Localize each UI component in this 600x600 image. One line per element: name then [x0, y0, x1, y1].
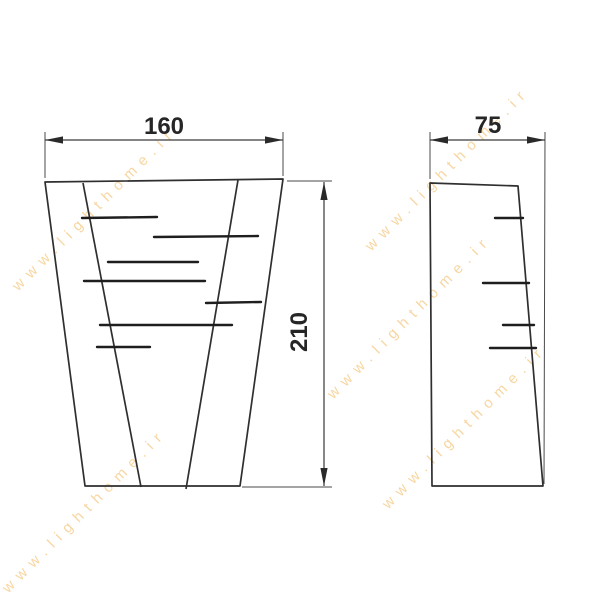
arrowhead-right — [527, 136, 545, 143]
arrowhead-bottom — [320, 468, 327, 486]
louver-line — [206, 302, 261, 303]
side-view-outline — [430, 183, 543, 486]
louver-line — [154, 236, 258, 237]
dimension-drawing-svg: 160 210 75 — [0, 0, 600, 600]
arrowhead-right — [265, 136, 283, 143]
dimension-front-width: 160 — [45, 113, 283, 178]
front-v-left-edge — [83, 183, 141, 487]
extension-line — [544, 132, 545, 484]
arrowhead-left — [45, 136, 63, 143]
front-view — [45, 179, 283, 489]
front-view-outline — [45, 179, 283, 486]
dimension-label-depth: 75 — [475, 112, 502, 139]
dimension-front-height: 210 — [242, 181, 332, 487]
dimension-label-width: 160 — [144, 113, 184, 140]
arrowhead-left — [430, 136, 448, 143]
louver-line — [82, 217, 157, 218]
arrowhead-top — [320, 182, 327, 200]
front-v-right-edge — [186, 180, 238, 489]
technical-drawing-page: www.lighthome.ir www.lighthome.ir www.li… — [0, 0, 600, 600]
dimension-label-height: 210 — [286, 312, 313, 352]
side-view — [430, 183, 543, 486]
